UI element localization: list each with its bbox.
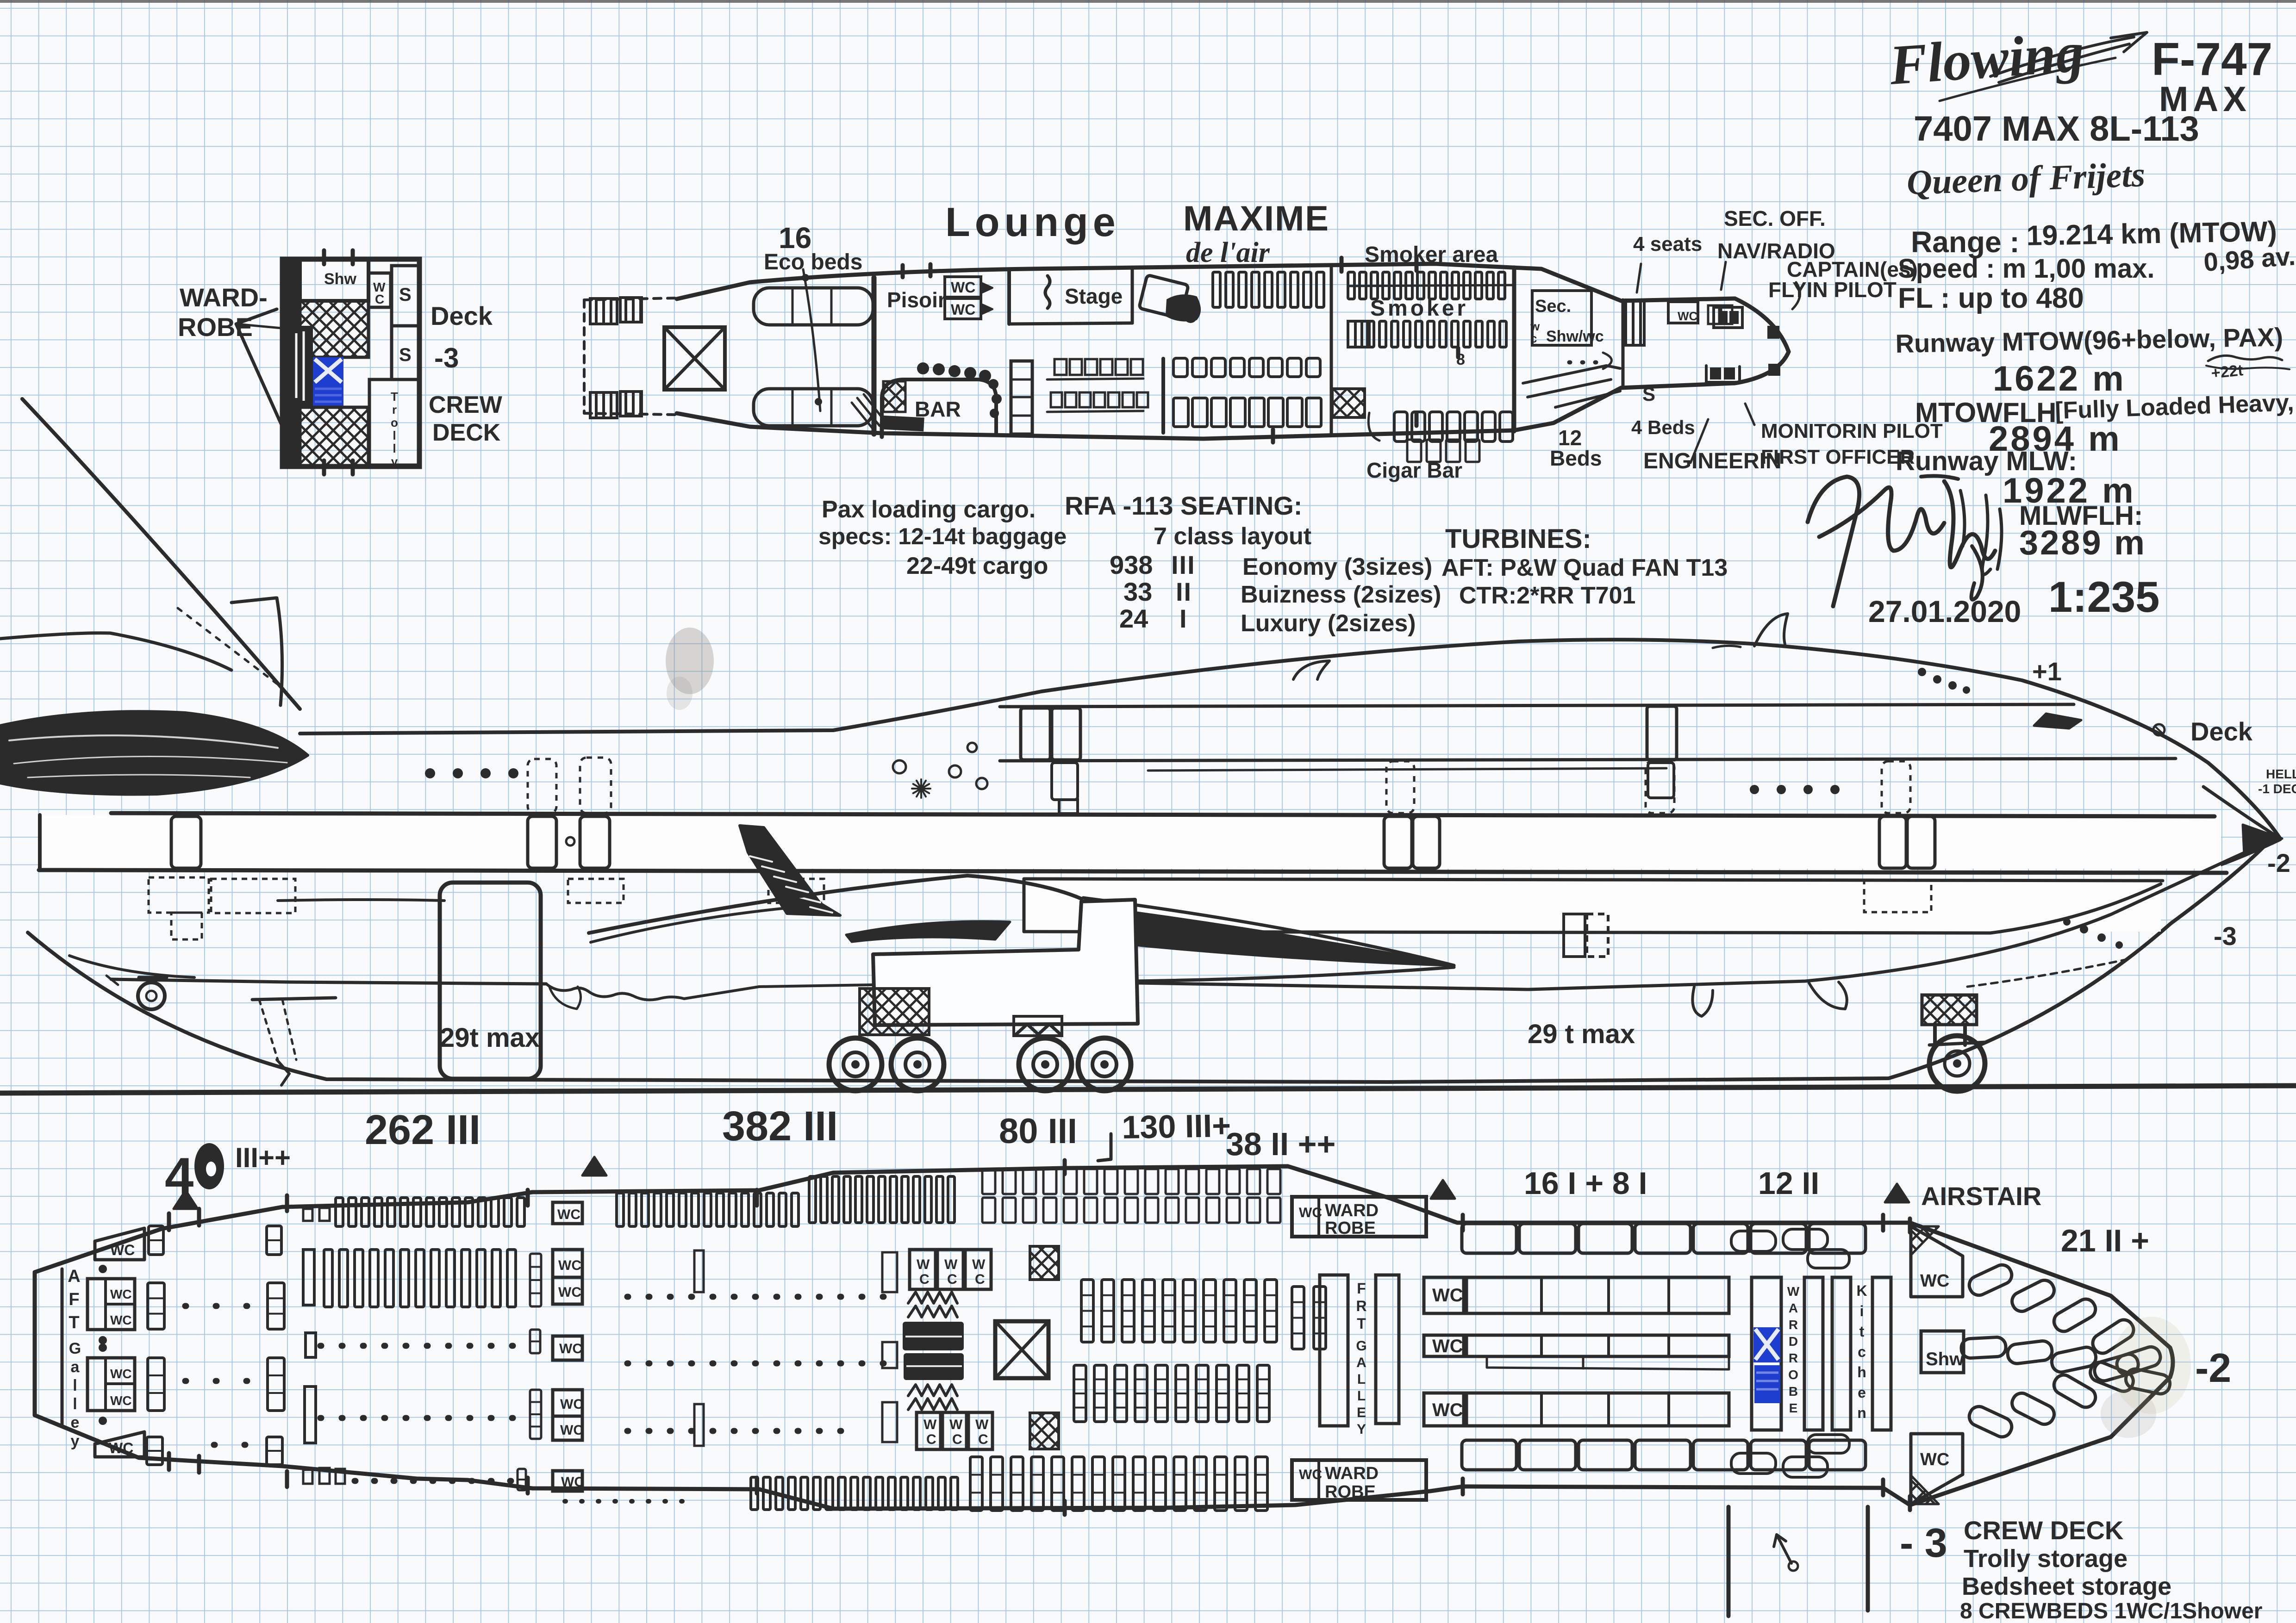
svg-text:Shw/wc: Shw/wc [1546,328,1604,345]
svg-text:FIRST OFFICER: FIRST OFFICER [1761,446,1915,468]
svg-text:D: D [1789,1334,1798,1349]
svg-text:W: W [944,1257,958,1272]
svg-text:WC: WC [557,1207,580,1222]
svg-text:FL : up to 480: FL : up to 480 [1898,282,2084,314]
svg-text:L: L [1357,1388,1366,1404]
svg-text:y: y [71,1432,80,1450]
svg-text:AIRSTAIR: AIRSTAIR [1921,1181,2041,1211]
svg-text:S: S [1642,383,1655,405]
svg-text:WC: WC [110,1242,135,1258]
svg-text:W: W [923,1417,937,1432]
svg-text:80 III: 80 III [999,1112,1077,1151]
svg-text:B: B [1789,1384,1798,1399]
svg-text:7 class layout: 7 class layout [1154,523,1311,550]
svg-text:e: e [1858,1384,1866,1401]
svg-text:C: C [919,1272,930,1287]
svg-text:R: R [1789,1351,1798,1365]
svg-text:38 II ++: 38 II ++ [1226,1126,1335,1162]
svg-text:Shw: Shw [324,270,356,288]
svg-text:Eco beds: Eco beds [764,250,862,274]
svg-text:II: II [1176,577,1192,606]
svg-text:7407 MAX 8L-113: 7407 MAX 8L-113 [1914,109,2199,149]
svg-text:c: c [1858,1343,1866,1360]
svg-text:L: L [1357,1372,1366,1387]
svg-text:a: a [71,1358,80,1376]
svg-text:C: C [375,292,384,306]
svg-text:WC: WC [1920,1271,1949,1291]
svg-text:WC: WC [951,301,975,318]
svg-text:WC: WC [560,1423,583,1438]
svg-text:S: S [399,345,412,365]
svg-text:Sec.: Sec. [1535,297,1571,316]
svg-text:III: III [1171,550,1196,579]
svg-text:G: G [1356,1338,1366,1354]
svg-text:Beds: Beds [1550,446,1602,470]
svg-text:WC: WC [1920,1450,1949,1469]
svg-text:12 II: 12 II [1758,1166,1819,1201]
svg-text:FLYIN PILOT: FLYIN PILOT [1768,278,1897,302]
svg-text:specs: 12-14t baggage: specs: 12-14t baggage [818,523,1067,549]
svg-text:C: C [952,1432,962,1447]
svg-text:WC: WC [110,1287,132,1301]
svg-text:HELL: HELL [2266,767,2296,781]
svg-text:F-747: F-747 [2152,33,2272,85]
svg-text:ROBE: ROBE [1325,1482,1376,1502]
svg-text:Smoker: Smoker [1370,296,1468,321]
svg-text:K: K [1856,1282,1867,1299]
svg-text:WC: WC [110,1313,132,1327]
svg-text:Eonomy (3sizes): Eonomy (3sizes) [1242,553,1432,580]
svg-text:E: E [1357,1405,1366,1420]
svg-text:ROBE: ROBE [1325,1219,1376,1238]
svg-text:WC: WC [558,1258,581,1273]
svg-text:III++: III++ [235,1142,291,1173]
svg-text:1:235: 1:235 [2048,572,2159,621]
svg-text:A: A [68,1267,80,1286]
svg-text:Bedsheet storage: Bedsheet storage [1962,1573,2171,1600]
svg-text:-3: -3 [434,342,459,373]
svg-text:Cigar Bar: Cigar Bar [1366,458,1462,482]
svg-text:1622 m: 1622 m [1993,359,2126,398]
svg-text:E: E [1789,1401,1798,1415]
svg-text:Deck: Deck [2190,717,2253,746]
svg-text:-2: -2 [2195,1345,2231,1391]
svg-text:h: h [1857,1364,1866,1380]
svg-text:4 Beds: 4 Beds [1631,417,1695,438]
svg-text:CREW: CREW [429,392,503,418]
svg-text:Luxury (2sizes): Luxury (2sizes) [1241,610,1416,637]
svg-text:SEC. OFF.: SEC. OFF. [1724,206,1826,230]
svg-text:y: y [391,454,398,468]
svg-text:BAR: BAR [915,397,961,421]
svg-text:27.01.2020: 27.01.2020 [1868,594,2021,628]
svg-text:ROBE: ROBE [178,312,253,342]
svg-text:l: l [73,1395,77,1413]
svg-text:WC: WC [110,1367,132,1381]
svg-text:RFA -113 SEATING:: RFA -113 SEATING: [1065,491,1302,520]
svg-text:T: T [391,390,398,404]
svg-text:- 3: - 3 [1900,1520,1947,1566]
svg-text:CREW DECK: CREW DECK [1964,1516,2123,1545]
svg-text:Pax loading cargo.: Pax loading cargo. [822,496,1036,523]
svg-text:T: T [1357,1315,1366,1332]
svg-text:R: R [1789,1318,1798,1332]
svg-text:-3: -3 [2214,921,2237,951]
svg-text:MONITORIN PILOT: MONITORIN PILOT [1761,420,1943,442]
svg-text:AFT: P&W Quad FAN T13: AFT: P&W Quad FAN T13 [1441,554,1728,581]
svg-text:i: i [1860,1303,1864,1319]
svg-text:W: W [917,1257,930,1272]
svg-text:130 III+: 130 III+ [1122,1107,1231,1145]
svg-text:WC: WC [1299,1205,1322,1220]
svg-text:Smoker area: Smoker area [1365,243,1498,267]
svg-text:WC: WC [560,1397,583,1412]
svg-text:WC: WC [1678,309,1698,323]
svg-text:-2: -2 [2267,848,2290,877]
svg-text:-1 DECK: -1 DECK [2258,782,2296,796]
svg-text:WC: WC [1432,1400,1463,1420]
svg-text:G: G [69,1340,81,1357]
svg-text:R: R [1356,1298,1366,1314]
svg-text:CTR:2*RR T701: CTR:2*RR T701 [1459,582,1635,609]
svg-text:de l'air: de l'air [1186,237,1270,268]
svg-text:C: C [926,1432,936,1447]
svg-text:W: W [975,1417,989,1432]
svg-text:F: F [1357,1280,1366,1297]
svg-text:22-49t cargo: 22-49t cargo [906,553,1048,579]
svg-text:T: T [69,1313,79,1332]
svg-text:WC: WC [558,1285,581,1300]
svg-text:O: O [1788,1368,1798,1382]
svg-text:o: o [391,416,398,429]
svg-text:4 seats: 4 seats [1633,233,1702,255]
svg-text:16 I + 8 I: 16 I + 8 I [1524,1166,1647,1201]
svg-text:21 II +: 21 II + [2061,1223,2149,1258]
svg-text:l: l [73,1377,77,1394]
svg-text:WC: WC [110,1393,132,1408]
svg-text:+22t: +22t [2210,361,2244,382]
svg-text:262 III: 262 III [365,1107,480,1153]
svg-text:938: 938 [1110,550,1153,579]
svg-text:F: F [69,1290,79,1309]
svg-text:Deck: Deck [430,301,493,330]
svg-text:C: C [978,1432,988,1447]
svg-text:r: r [392,403,397,417]
svg-text:33: 33 [1123,577,1152,606]
svg-text:+1: +1 [2032,657,2062,686]
svg-text:29 t max: 29 t max [1528,1019,1635,1049]
svg-text:A: A [1789,1301,1798,1315]
svg-text:n: n [1857,1405,1866,1421]
svg-text:S: S [399,285,412,305]
svg-text:WARD: WARD [1325,1201,1379,1220]
svg-text:WC: WC [559,1341,582,1356]
svg-text:WC: WC [1432,1285,1463,1306]
svg-text:WARD: WARD [1325,1464,1379,1483]
svg-text:WC: WC [951,279,975,296]
svg-text:c: c [1530,331,1537,345]
svg-text:DECK: DECK [432,419,501,446]
svg-text:l: l [393,429,396,442]
svg-text:Stage: Stage [1065,284,1123,308]
svg-text:382 III: 382 III [722,1103,838,1150]
svg-text:TURBINES:: TURBINES: [1445,524,1591,554]
svg-text:WARD-: WARD- [180,283,268,312]
svg-text:WC: WC [1432,1336,1463,1356]
svg-text:C: C [947,1272,957,1287]
svg-text:WC: WC [109,1440,133,1456]
svg-text:l: l [393,442,396,455]
svg-text:e: e [71,1414,80,1431]
svg-text:WC: WC [1299,1467,1322,1482]
svg-text:3289 m: 3289 m [2019,523,2146,562]
svg-text:24: 24 [1119,604,1148,633]
svg-text:t: t [1859,1323,1865,1340]
svg-text:Lounge: Lounge [945,199,1120,245]
svg-text:4: 4 [165,1147,193,1205]
svg-text:MAXIME: MAXIME [1183,199,1329,238]
svg-text:W: W [972,1257,986,1272]
svg-text:29t max: 29t max [440,1023,540,1053]
svg-text:Speed : m 1,00 max.: Speed : m 1,00 max. [1898,254,2154,284]
svg-text:Pisoir: Pisoir [887,288,946,312]
svg-text:Y: Y [1357,1422,1366,1437]
svg-text:Buizness (2sizes): Buizness (2sizes) [1241,581,1441,608]
svg-text:I: I [1179,604,1187,633]
svg-text:W: W [949,1417,963,1432]
svg-text:A: A [1356,1355,1366,1370]
svg-text:W: W [1787,1284,1800,1299]
svg-text:C: C [975,1272,985,1287]
svg-text:WC: WC [561,1474,584,1490]
svg-text:Queen of Frijets: Queen of Frijets [1906,155,2146,202]
svg-text:8 CREWBEDS 1WC/1Shower: 8 CREWBEDS 1WC/1Shower [1960,1599,2262,1623]
svg-text:Trolly storage: Trolly storage [1964,1545,2128,1573]
svg-text:Shw: Shw [1926,1349,1964,1369]
